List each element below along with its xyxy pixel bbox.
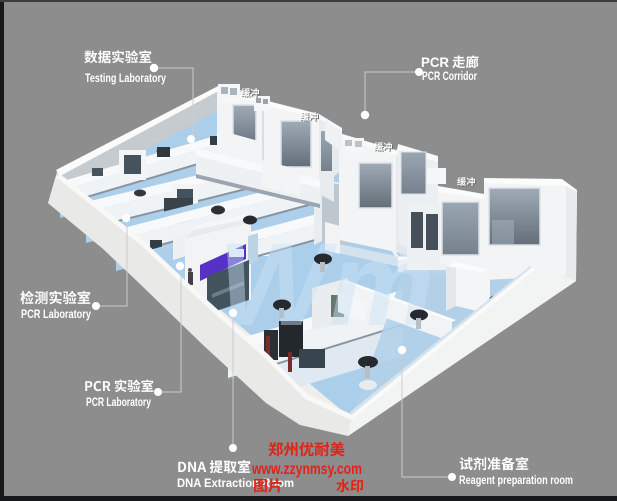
svg-text:PCR Corridor: PCR Corridor: [422, 71, 477, 83]
svg-text:PCR Laboratory: PCR Laboratory: [21, 309, 91, 321]
svg-text:PCR: PCR: [421, 54, 449, 70]
svg-text:Testing Laboratory: Testing Laboratory: [85, 71, 166, 85]
svg-text:www.zzynmsy.com: www.zzynmsy.com: [251, 461, 362, 478]
svg-text:PCR Laboratory: PCR Laboratory: [86, 397, 151, 409]
svg-text:Reagent preparation room: Reagent preparation room: [459, 475, 573, 487]
